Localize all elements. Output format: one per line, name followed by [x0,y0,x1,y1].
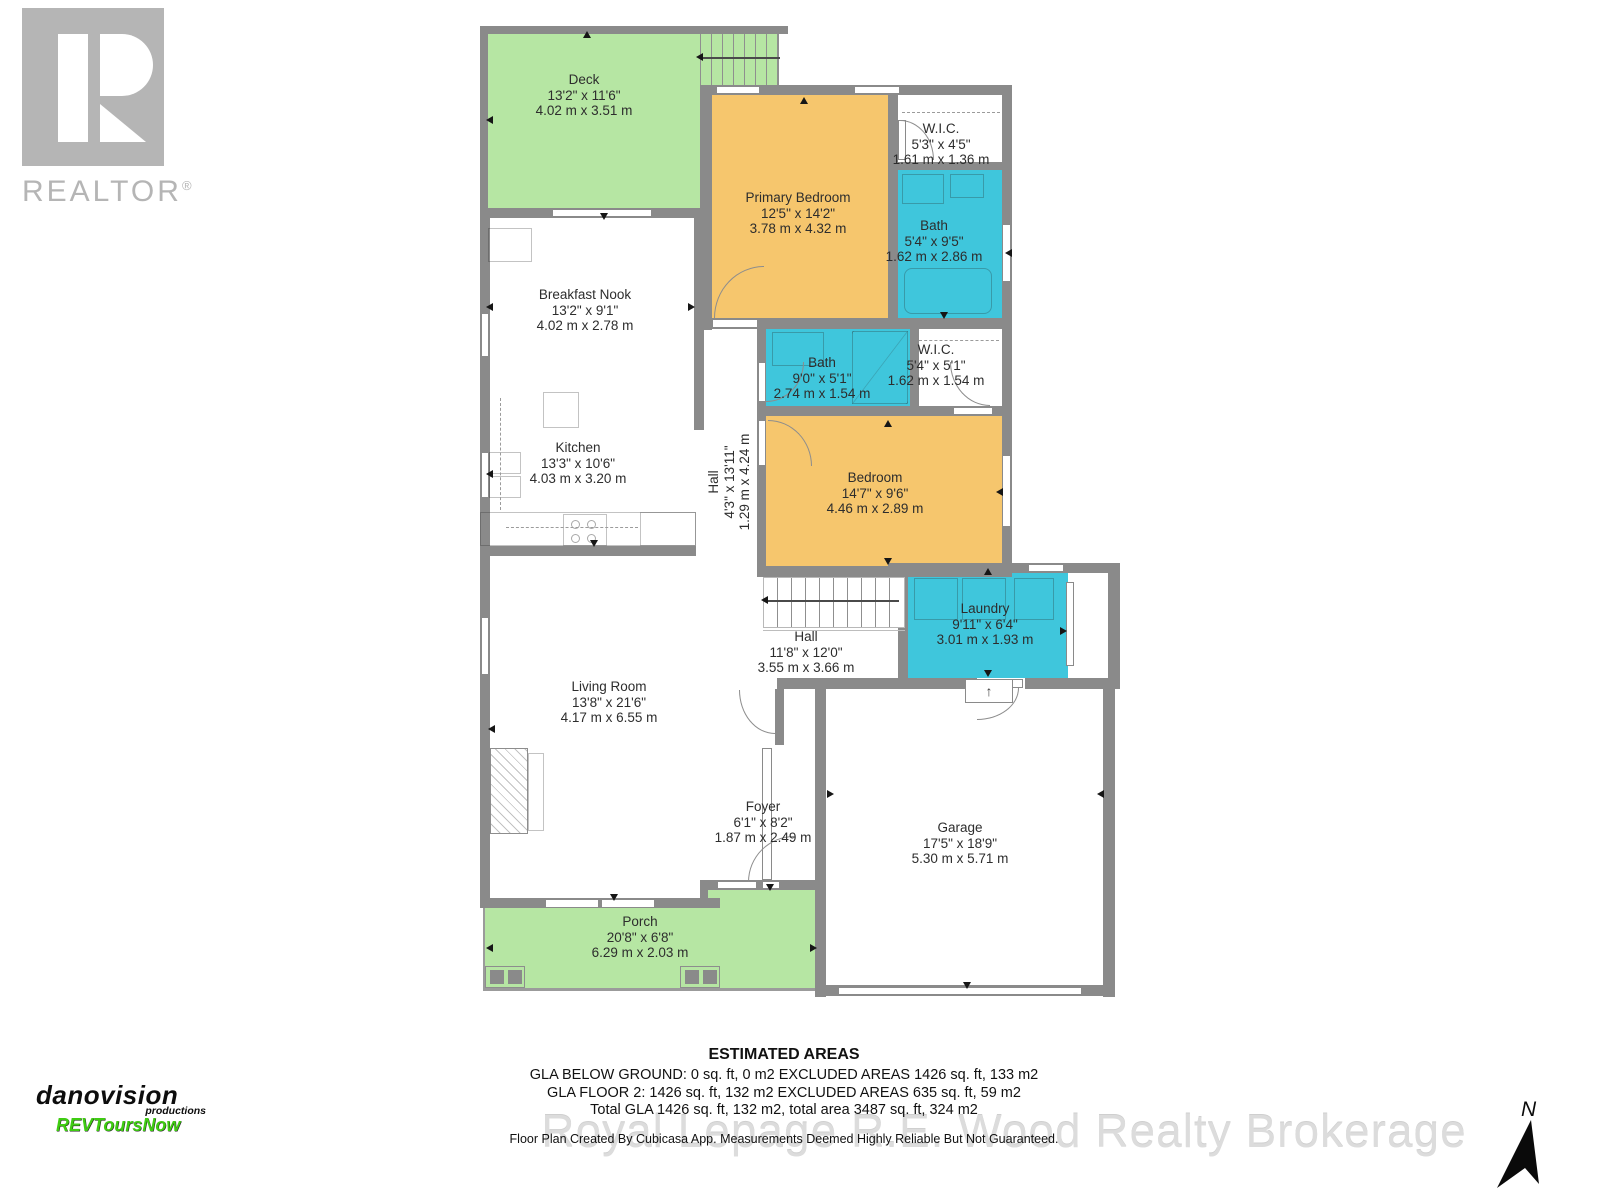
room-dim-imperial: 6'1" x 8'2" [715,815,812,831]
room-label-living-room: Living Room 13'8" x 21'6" 4.17 m x 6.55 … [561,679,658,726]
fixture [902,174,944,204]
window [1002,455,1011,527]
wall [777,678,977,689]
realtor-r-icon [22,8,164,166]
deck-stair-tread [744,34,745,85]
closet-dash [919,340,999,341]
dimension-arrow-icon [486,470,493,478]
wall [480,546,696,556]
stair-tread [819,578,820,627]
porch-planter [485,966,525,988]
room-dim-imperial: 11'8" x 12'0" [758,645,855,661]
room-label-wic-bedroom: W.I.C. 5'4" x 5'1" 1.62 m x 1.54 m [888,342,985,389]
planter-pot [703,970,717,984]
room-name: Bath [886,218,983,234]
wall [480,26,788,34]
room-name: Foyer [715,799,812,815]
room-dim-imperial: 20'8" x 6'8" [592,930,689,946]
dimension-arrow-icon [963,982,971,989]
dimension-arrow-icon [486,116,493,124]
gla-floor2-line: GLA FLOOR 2: 1426 sq. ft, 132 m2 EXCLUDE… [234,1085,1334,1103]
north-arrow-icon: N [1483,1090,1563,1195]
stair-tread [833,578,834,627]
window [712,319,758,328]
window [758,420,766,466]
room-label-deck: Deck 13'2" x 11'6" 4.02 m x 3.51 m [536,72,633,119]
window [838,987,1082,995]
stair-tread [875,578,876,627]
estimated-areas-block: ESTIMATED AREAS GLA BELOW GROUND: 0 sq. … [234,1046,1334,1120]
room-dim-metric: 1.87 m x 2.49 m [715,830,812,846]
room-name: W.I.C. [893,121,990,137]
dimension-arrow-icon [1060,627,1067,635]
room-dim-metric: 4.46 m x 2.89 m [827,501,924,517]
stair-rail [765,600,899,602]
room-dim-imperial: 12'5" x 14'2" [745,206,850,222]
wall [1108,563,1120,688]
dimension-arrow-icon [940,312,948,319]
dimension-arrow-icon [984,568,992,575]
north-label: N [1521,1098,1537,1121]
room-dim-metric: 3.55 m x 3.66 m [758,660,855,676]
room-name: Living Room [561,679,658,695]
window [481,617,489,675]
dimension-arrow-icon [810,944,817,952]
dimension-arrow-icon [688,303,695,311]
dimension-arrow-icon [488,725,495,733]
danovision-logo: danovision productions REVToursNow [36,1080,206,1136]
stove-burner [571,534,580,543]
dimension-arrow-icon [800,97,808,104]
room-label-porch: Porch 20'8" x 6'8" 6.29 m x 2.03 m [592,914,689,961]
room-dim-metric: 4.02 m x 3.51 m [536,103,633,119]
living-room-area [490,556,694,898]
disclaimer-text: Floor Plan Created By Cubicasa App. Meas… [234,1132,1334,1146]
fixture [543,392,579,428]
room-name: W.I.C. [888,342,985,358]
room-label-hall-lower: Hall 11'8" x 12'0" 3.55 m x 3.66 m [758,629,855,676]
deck-stair-tread [766,34,767,85]
room-dim-imperial: 5'4" x 5'1" [888,358,985,374]
room-label-foyer: Foyer 6'1" x 8'2" 1.87 m x 2.49 m [715,799,812,846]
wall [480,898,720,908]
room-label-bath-primary: Bath 5'4" x 9'5" 1.62 m x 2.86 m [886,218,983,265]
realtor-wordmark: REALTOR® [22,175,195,209]
revtoursnow-wordmark: REVToursNow [36,1115,206,1136]
dimension-arrow-icon [583,31,591,38]
window [758,362,766,402]
deck-stair-tread [711,34,712,85]
window [953,407,993,415]
room-dim-metric: 1.62 m x 1.54 m [888,373,985,389]
room-name: Garage [912,820,1009,836]
stair-tread [791,578,792,627]
fixture [488,228,532,262]
window [717,881,757,889]
closet-dash [902,112,1000,113]
room-name: Primary Bedroom [745,190,850,206]
room-label-laundry: Laundry 9'11" x 6'4" 3.01 m x 1.93 m [937,601,1034,648]
room-name: Hall [758,629,855,645]
room-label-primary-bedroom: Primary Bedroom 12'5" x 14'2" 3.78 m x 4… [745,190,850,237]
room-name: Porch [592,914,689,930]
room-name: Bath [774,355,871,371]
room-dim-metric: 2.74 m x 1.54 m [774,386,871,402]
wall [775,689,784,745]
room-dim-metric: 1.62 m x 2.86 m [886,249,983,265]
deck-stair-tread [733,34,734,85]
room-dim-imperial: 13'2" x 11'6" [536,88,633,104]
deck-stair-tread [722,34,723,85]
dimension-arrow-icon [766,884,774,891]
deck-stair-rail [700,57,780,59]
window [716,86,760,94]
room-dim-imperial: 5'3" x 4'5" [893,137,990,153]
porch-foyer-area [706,890,815,988]
window [1028,564,1064,572]
estimated-areas-title: ESTIMATED AREAS [234,1046,1334,1064]
window [481,313,489,357]
room-label-wic-primary: W.I.C. 5'3" x 4'5" 1.61 m x 1.36 m [893,121,990,168]
room-label-breakfast-nook: Breakfast Nook 13'2" x 9'1" 4.02 m x 2.7… [537,287,634,334]
room-dim-imperial: 13'2" x 9'1" [537,303,634,319]
dimension-arrow-icon [486,303,493,311]
fixture [528,753,544,831]
room-name: Deck [536,72,633,88]
wall [1103,688,1115,997]
dimension-arrow-icon [600,213,608,220]
dimension-arrow-icon [610,894,618,901]
room-dim-imperial: 4'3" x 13'11" [721,434,737,531]
wall [694,215,704,430]
room-dim-imperial: 13'3" x 10'6" [530,456,627,472]
room-name: Breakfast Nook [537,287,634,303]
stair-tread [861,578,862,627]
gla-total-line: Total GLA 1426 sq. ft, 132 m2, total are… [234,1102,1334,1120]
room-name: Kitchen [530,440,627,456]
fixture [640,512,696,546]
fixture [489,476,521,498]
room-label-bath-main: Bath 9'0" x 5'1" 2.74 m x 1.54 m [774,355,871,402]
planter-pot [685,970,699,984]
fixture [950,174,984,198]
window [854,86,900,94]
stair-tread [847,578,848,627]
dimension-arrow-icon [996,488,1003,496]
dimension-arrow-icon [827,790,834,798]
room-dim-imperial: 9'0" x 5'1" [774,371,871,387]
window [545,899,599,908]
dimension-arrow-icon [590,540,598,547]
window [1066,582,1074,666]
stair-arrow-icon [761,596,768,604]
dimension-arrow-icon [1097,790,1104,798]
deck-stair-arrow-icon [696,53,703,61]
room-name: Laundry [937,601,1034,617]
fixture [489,452,521,474]
counter-dash [500,398,501,510]
room-dim-metric: 1.61 m x 1.36 m [893,152,990,168]
room-label-hall-upper: Hall 4'3" x 13'11" 1.29 m x 4.24 m [706,434,753,531]
room-dim-metric: 6.29 m x 2.03 m [592,945,689,961]
room-dim-imperial: 9'11" x 6'4" [937,617,1034,633]
planter-pot [490,970,504,984]
room-dim-metric: 3.78 m x 4.32 m [745,221,850,237]
floor-plan-page: ↑ Deck 13'2" x 11'6" 4.02 m x 3.51 m Pri… [0,0,1600,1200]
room-dim-metric: 5.30 m x 5.71 m [912,851,1009,867]
stair-tread [805,578,806,627]
north-compass: N [1483,1090,1563,1200]
deck-stair-tread [777,34,778,85]
stair-tread [777,578,778,627]
garage-step: ↑ [965,679,1013,703]
stair-tread [889,578,890,627]
fixture [904,268,992,314]
dimension-arrow-icon [486,944,493,952]
room-dim-metric: 4.02 m x 2.78 m [537,318,634,334]
room-dim-imperial: 14'7" x 9'6" [827,486,924,502]
room-label-kitchen: Kitchen 13'3" x 10'6" 4.03 m x 3.20 m [530,440,627,487]
planter-pot [508,970,522,984]
room-dim-imperial: 13'8" x 21'6" [561,695,658,711]
room-label-garage: Garage 17'5" x 18'9" 5.30 m x 5.71 m [912,820,1009,867]
dimension-arrow-icon [1005,249,1012,257]
room-dim-metric: 4.03 m x 3.20 m [530,471,627,487]
step-up-arrow-icon: ↑ [986,683,993,699]
porch-planter [680,966,720,988]
realtor-logo: REALTOR® [22,8,195,209]
room-dim-imperial: 5'4" x 9'5" [886,234,983,250]
dimension-arrow-icon [984,670,992,677]
deck-stair-tread [755,34,756,85]
room-dim-metric: 4.17 m x 6.55 m [561,710,658,726]
registered-mark: ® [182,178,195,193]
room-dim-metric: 1.29 m x 4.24 m [737,434,753,531]
room-name: Hall [706,434,722,531]
room-dim-metric: 3.01 m x 1.93 m [937,632,1034,648]
stairs-outline [763,577,905,628]
counter-dash [506,527,638,528]
room-dim-imperial: 17'5" x 18'9" [912,836,1009,852]
dimension-arrow-icon [884,420,892,427]
fireplace [490,748,528,834]
room-label-bedroom: Bedroom 14'7" x 9'6" 4.46 m x 2.89 m [827,470,924,517]
dimension-arrow-icon [884,558,892,565]
room-name: Bedroom [827,470,924,486]
wall [888,563,1120,573]
deck-area [488,34,700,208]
gla-below-ground-line: GLA BELOW GROUND: 0 sq. ft, 0 m2 EXCLUDE… [234,1067,1334,1085]
